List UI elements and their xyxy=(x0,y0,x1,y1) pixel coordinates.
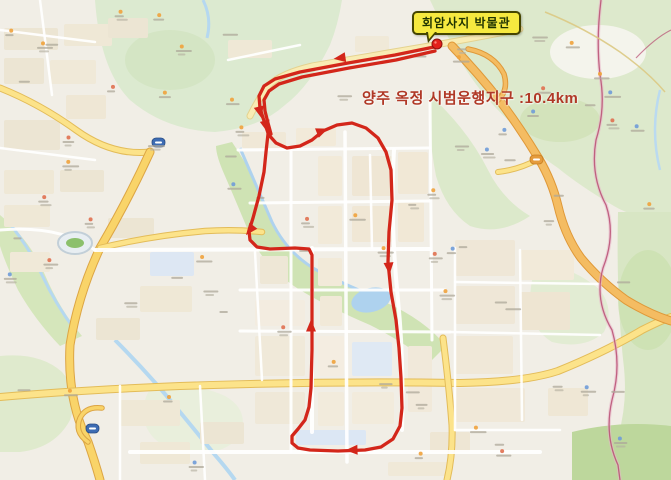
map-canvas[interactable]: 양주 옥정 시범운행지구 :10.4km 회암사지 박물관 xyxy=(0,0,671,480)
destination-callout: 회암사지 박물관 xyxy=(412,11,521,35)
stadium-icon xyxy=(58,232,92,254)
route-distance-label: 양주 옥정 시범운행지구 :10.4km xyxy=(362,87,578,108)
basemap xyxy=(0,0,671,480)
destination-callout-text: 회암사지 박물관 xyxy=(422,16,511,30)
